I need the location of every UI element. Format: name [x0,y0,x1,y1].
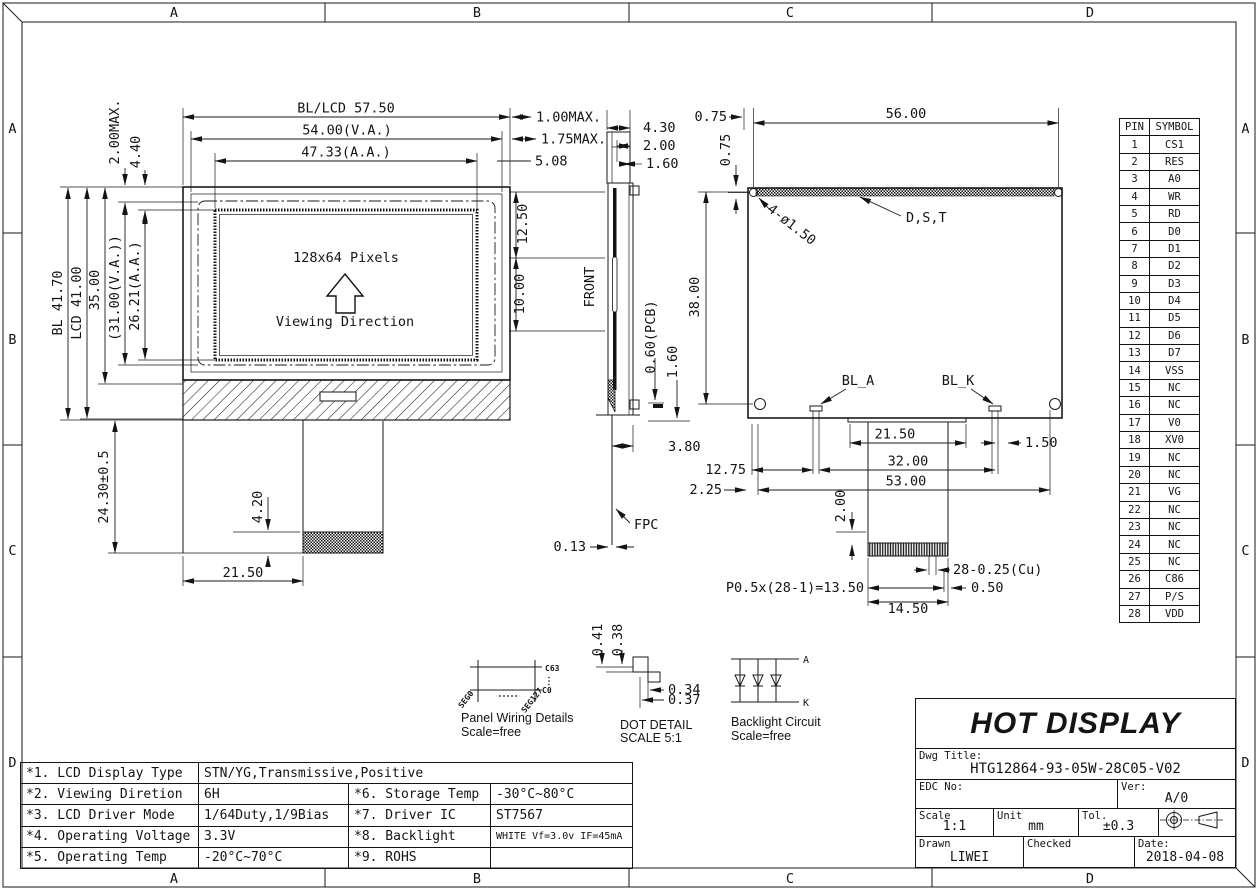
pin-number: 22 [1120,501,1150,518]
spec-key: *4. Operating Voltage [21,826,199,847]
pin-symbol: P/S [1150,588,1200,605]
fpc-label: FPC [634,517,658,533]
pixels-label: 128x64 Pixels [293,250,399,266]
pin-symbol: D7 [1150,345,1200,362]
panel-detail-scale: Scale=free [461,725,521,739]
spec-value: ST7567 [491,805,633,826]
pin-row: 21 VG [1120,484,1200,501]
drawn-label: Drawn [919,838,951,850]
pin-row: 19 NC [1120,449,1200,466]
pin-row: 2 RES [1120,153,1200,170]
pin-symbol: CS1 [1150,136,1200,153]
zone-letter: B [473,5,481,21]
pin-number: 2 [1120,153,1150,170]
panel-detail-title: Panel Wiring Details [461,711,574,725]
pin-row: 1 CS1 [1120,136,1200,153]
back-view: 56.00 0.75 0.75 4-ø1.50 D,S,T 38.00 BL_A… [687,106,1063,617]
drawn-value: LIWEI [916,850,1023,865]
spec-value: 3.3V [199,826,349,847]
spec-key: *3. LCD Driver Mode [21,805,199,826]
spec-key: *6. Storage Temp [349,784,491,805]
pin-number: 7 [1120,240,1150,257]
version-value: A/0 [1118,791,1235,806]
dim-aa-height: 26.21(A.A.) [127,241,143,330]
dim-24-30: 24.30±0.5 [96,450,112,523]
pin-row: 3 A0 [1120,171,1200,188]
spec-row: *1. LCD Display Type STN/YG,Transmissive… [21,763,633,784]
pin-symbol: A0 [1150,171,1200,188]
spec-table: *1. LCD Display Type STN/YG,Transmissive… [20,762,633,869]
pin-symbol: D3 [1150,275,1200,292]
zone-letter: D [1241,755,1249,771]
pin-symbol: WR [1150,188,1200,205]
pin-number: 23 [1120,518,1150,535]
side-view: 4.30 2.00 1.60 12.50 10.00 FRONT 0.60(PC… [509,110,701,555]
pin-number: 5 [1120,205,1150,222]
dim-aa-width: 47.33(A.A.) [301,145,390,161]
zone-letter: B [473,871,481,887]
pin-row: 14 VSS [1120,362,1200,379]
pin-number: 26 [1120,571,1150,588]
pin-number: 19 [1120,449,1150,466]
pin-row: 17 V0 [1120,414,1200,431]
pin-symbol: VSS [1150,362,1200,379]
pin-number: 25 [1120,553,1150,570]
unit-value: mm [994,819,1078,834]
pin-row: 13 D7 [1120,345,1200,362]
zone-letter: C [8,543,16,559]
zone-letter: A [8,121,16,137]
pin-row: 8 D2 [1120,258,1200,275]
zone-letter: A [170,5,178,21]
scale-value: 1:1 [916,819,993,834]
pin-symbol: NC [1150,397,1200,414]
spec-key: *9. ROHS [349,847,491,868]
pin-row: 12 D6 [1120,327,1200,344]
pin-row: 25 NC [1120,553,1200,570]
dst-label: D,S,T [906,210,947,226]
dim-0-75-h: 0.75 [694,109,727,125]
pin-number: 15 [1120,379,1150,396]
mounting-holes-label: 4-ø1.50 [764,201,819,249]
pin-row: 28 VDD [1120,605,1200,622]
front-view: 128x64 Pixels Viewing Direction BL/LCD 5… [50,99,606,586]
projection-symbol-icon [1159,809,1225,831]
dot-detail-scale: SCALE 5:1 [620,731,682,745]
dim-2-00-max: 2.00MAX. [107,99,123,164]
zone-letter: C [786,5,794,21]
pin-row: 11 D5 [1120,310,1200,327]
dim-0-37: 0.37 [668,692,701,708]
dim-bl-lcd-width: BL/LCD 57.50 [297,101,395,117]
dim-14-50: 14.50 [888,601,929,617]
pin-symbol: NC [1150,449,1200,466]
pin-row: 16 NC [1120,397,1200,414]
pin-symbol: D1 [1150,240,1200,257]
zone-letter: D [1086,5,1094,21]
zone-letter: C [1241,543,1249,559]
spec-row: *2. Viewing Diretion 6H *6. Storage Temp… [21,784,633,805]
pin-symbol: D2 [1150,258,1200,275]
dim-56-00: 56.00 [886,106,927,122]
dim-12-75: 12.75 [705,462,746,478]
pin-row: 15 NC [1120,379,1200,396]
dim-12-50: 12.50 [515,204,531,245]
dim-bl-height: BL 41.70 [50,270,66,335]
spec-key: *7. Driver IC [349,805,491,826]
pin-symbol: NC [1150,536,1200,553]
pin-row: 27 P/S [1120,588,1200,605]
dim-35-00: 35.00 [87,270,103,311]
dim-0-50: 0.50 [971,580,1004,596]
dim-32-00: 32.00 [888,454,929,470]
pin-number: 8 [1120,258,1150,275]
pin-symbol: C86 [1150,571,1200,588]
dim-cu: 28-0.25(Cu) [953,562,1042,578]
dim-21-50: 21.50 [223,565,264,581]
pin-number: 24 [1120,536,1150,553]
pin-row: 5 RD [1120,205,1200,222]
spec-row: *4. Operating Voltage 3.3V *8. Backlight… [21,826,633,847]
pin-number: 3 [1120,171,1150,188]
pin-row: 26 C86 [1120,571,1200,588]
pin-row: 24 NC [1120,536,1200,553]
pin-number: 6 [1120,223,1150,240]
fpc-connector-hatch [868,543,948,556]
fpc-stiffener-hatch [303,532,383,553]
pin-number: 16 [1120,397,1150,414]
pin-symbol: NC [1150,379,1200,396]
pin-row: 10 D4 [1120,292,1200,309]
pin-number: 4 [1120,188,1150,205]
dim-53-00: 53.00 [886,474,927,490]
dim-va-width: 54.00(V.A.) [302,123,391,139]
fpc-bend-hatch [608,380,615,412]
spec-value: 6H [199,784,349,805]
pin-number: 28 [1120,605,1150,622]
dim-1-50: 1.50 [1025,435,1058,451]
dot-detail: 0.41 0.38 0.34 0.37 DOT DETAIL SCALE 5:1 [590,624,701,745]
dim-0-41: 0.41 [590,624,606,657]
pin-number: 21 [1120,484,1150,501]
spec-key: *8. Backlight [349,826,491,847]
edc-no-label: EDC No: [919,781,963,793]
viewing-direction-label: Viewing Direction [276,314,414,330]
dim-0-75-v: 0.75 [718,134,734,167]
pin-symbol: NC [1150,501,1200,518]
pin-row: 23 NC [1120,518,1200,535]
spec-value [491,847,633,868]
pin-symbol: D6 [1150,327,1200,344]
pin-symbol: XV0 [1150,432,1200,449]
pin-number: 11 [1120,310,1150,327]
date-value: 2018-04-08 [1135,850,1235,865]
dim-21-50-b: 21.50 [875,427,916,443]
backlight-circuit-detail: A K Backlight Circuit Scale=free [731,655,821,743]
dim-38-00: 38.00 [687,277,703,318]
zone-letter: A [1241,121,1249,137]
spec-value: WHITE Vf=3.0v IF=45mA [491,826,633,847]
company-logo: HOT DISPLAY [916,699,1235,748]
dim-0-38: 0.38 [610,624,626,657]
pin-row: 6 D0 [1120,223,1200,240]
pin-number: 17 [1120,414,1150,431]
backlight-detail-title: Backlight Circuit [731,715,821,729]
anode-label: A [803,655,809,666]
dim-4-20: 4.20 [250,491,266,524]
tol-value: ±0.3 [1079,819,1158,834]
spec-value: -30°C~80°C [491,784,633,805]
spec-value: STN/YG,Transmissive,Positive [199,763,633,784]
pin-symbol: D4 [1150,292,1200,309]
pin-number: 9 [1120,275,1150,292]
dim-1-60-b: 1.60 [665,346,681,379]
dim-lcd-height: LCD 41.00 [69,266,85,339]
spec-value: -20°C~70°C [199,847,349,868]
pin-number: 18 [1120,432,1150,449]
pin-row: 20 NC [1120,466,1200,483]
bl-k-label: BL_K [942,373,975,389]
cathode-label: K [803,698,809,709]
spec-key: *2. Viewing Diretion [21,784,199,805]
pin-symbol: NC [1150,553,1200,570]
spec-row: *5. Operating Temp -20°C~70°C *9. ROHS [21,847,633,868]
date-label: Date: [1138,838,1170,850]
dim-10-00: 10.00 [512,274,528,315]
pin-row: 9 D3 [1120,275,1200,292]
dim-0-13: 0.13 [553,539,586,555]
dim-pitch: P0.5x(28-1)=13.50 [726,580,864,596]
pcb-slot [320,392,356,401]
spec-key: *1. LCD Display Type [21,763,199,784]
pin-symbol: VDD [1150,605,1200,622]
pin-number: 13 [1120,345,1150,362]
zone-letter: D [8,755,16,771]
zone-letter: B [8,332,16,348]
dim-1-60: 1.60 [646,156,679,172]
pin-header: PIN [1120,119,1150,136]
spec-value: 1/64Duty,1/9Bias [199,805,349,826]
pin-number: 14 [1120,362,1150,379]
pin-symbol: RD [1150,205,1200,222]
dim-4-30: 4.30 [643,120,676,136]
dim-va-height: (31.00(V.A.)) [107,235,123,341]
pin-symbol: NC [1150,518,1200,535]
pin-number: 12 [1120,327,1150,344]
title-block: HOT DISPLAY Dwg Title: HTG12864-93-05W-2… [915,698,1236,868]
pin-symbol: RES [1150,153,1200,170]
dim-2-00-b: 2.00 [833,490,849,523]
c63-label: C63 [545,664,560,673]
pin-row: 18 XV0 [1120,432,1200,449]
pin-table-header: PIN SYMBOL [1120,119,1200,136]
zone-letter: A [170,871,178,887]
checked-label: Checked [1027,838,1071,850]
backlight-detail-scale: Scale=free [731,729,791,743]
panel-wiring-detail: C63 C0 SEG0 SEG127 Panel Wiring Details … [457,660,574,739]
dim-3-80: 3.80 [668,439,701,455]
dim-1-00-max: 1.00MAX. [536,110,601,126]
pin-symbol: D0 [1150,223,1200,240]
pin-number: 27 [1120,588,1150,605]
dim-0-60-pcb: 0.60(PCB) [643,300,659,373]
dim-5-08: 5.08 [535,154,568,170]
pin-number: 1 [1120,136,1150,153]
c0-label: C0 [542,686,552,695]
drawing-number: HTG12864-93-05W-28C05-V02 [916,761,1235,777]
zone-letter: D [1086,871,1094,887]
dim-2-25: 2.25 [689,482,722,498]
dot-detail-title: DOT DETAIL [620,718,693,732]
pin-number: 20 [1120,466,1150,483]
symbol-header: SYMBOL [1150,119,1200,136]
viewing-direction-arrow-icon [327,274,363,313]
pin-symbol: V0 [1150,414,1200,431]
bl-a-label: BL_A [842,373,875,389]
seg0-label: SEG0 [457,689,476,710]
zone-letter: C [786,871,794,887]
pin-number: 10 [1120,292,1150,309]
dim-4-40: 4.40 [128,136,144,169]
spec-key: *5. Operating Temp [21,847,199,868]
zone-letter: B [1241,332,1249,348]
pin-table: PIN SYMBOL 1 CS1 2 RES 3 A0 4 WR 5 RD 6 … [1119,118,1200,623]
pin-symbol: VG [1150,484,1200,501]
pin-symbol: NC [1150,466,1200,483]
dst-strip-hatch [756,188,1054,196]
pin-row: 4 WR [1120,188,1200,205]
dim-1-75-max: 1.75MAX. [541,132,606,148]
pin-row: 22 NC [1120,501,1200,518]
front-label: FRONT [582,267,598,308]
pin-symbol: D5 [1150,310,1200,327]
dim-2-00: 2.00 [643,138,676,154]
engineering-drawing-sheet: A B C D A B C D A B C D A B C D 128x64 P… [0,0,1258,890]
spec-row: *3. LCD Driver Mode 1/64Duty,1/9Bias *7.… [21,805,633,826]
pin-row: 7 D1 [1120,240,1200,257]
